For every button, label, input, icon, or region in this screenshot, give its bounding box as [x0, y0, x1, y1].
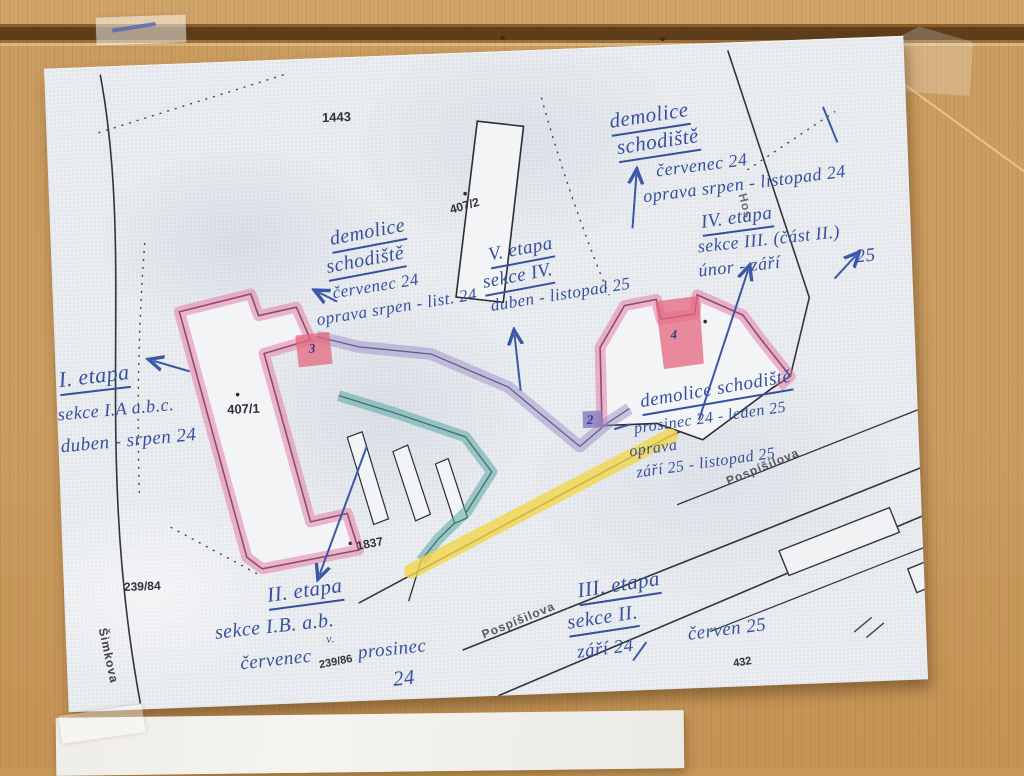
stair-marker-4: 4 [670, 327, 677, 343]
stair-marker-3: 3 [309, 341, 316, 357]
ink-arrow-stage1 [153, 359, 189, 372]
dotted-boundary-5 [745, 111, 837, 169]
tape-ink-streak [112, 22, 156, 33]
dotted-boundary-2 [130, 243, 155, 493]
annotation-check: v. [325, 631, 335, 647]
map-hatch-marks [854, 617, 885, 638]
wood-hole [660, 37, 665, 41]
parcel-label-407-1: 407/1 [227, 401, 260, 417]
bottom-paper-strip [56, 710, 685, 776]
courtyard-building-2 [393, 444, 431, 521]
building-left-wing [179, 290, 359, 571]
parcel-label-239-84: 239/84 [124, 579, 161, 594]
parcel-dot-407-2 [463, 192, 467, 196]
dotted-boundary-1 [96, 73, 290, 132]
annotation-line: 24 [392, 665, 417, 692]
wood-hole [500, 36, 505, 40]
cadastral-map-drawing [44, 36, 928, 713]
ink-arrow-top-right [630, 174, 638, 228]
ink-arrow-25 [834, 256, 857, 279]
stair-marker-2: 2 [587, 412, 594, 428]
annotation-line: 25 [855, 244, 877, 268]
courtyard-building-1 [347, 431, 389, 525]
tape-piece-top-left [96, 14, 187, 45]
photo-of-site-plan: 1443 407/2 407/1 1837 239/84 239/86 432 … [0, 0, 1024, 768]
ink-arrow-stage5 [515, 335, 521, 391]
site-plan-paper: 1443 407/2 407/1 1837 239/84 239/86 432 … [44, 36, 928, 713]
parcel-label-1443: 1443 [322, 109, 351, 125]
